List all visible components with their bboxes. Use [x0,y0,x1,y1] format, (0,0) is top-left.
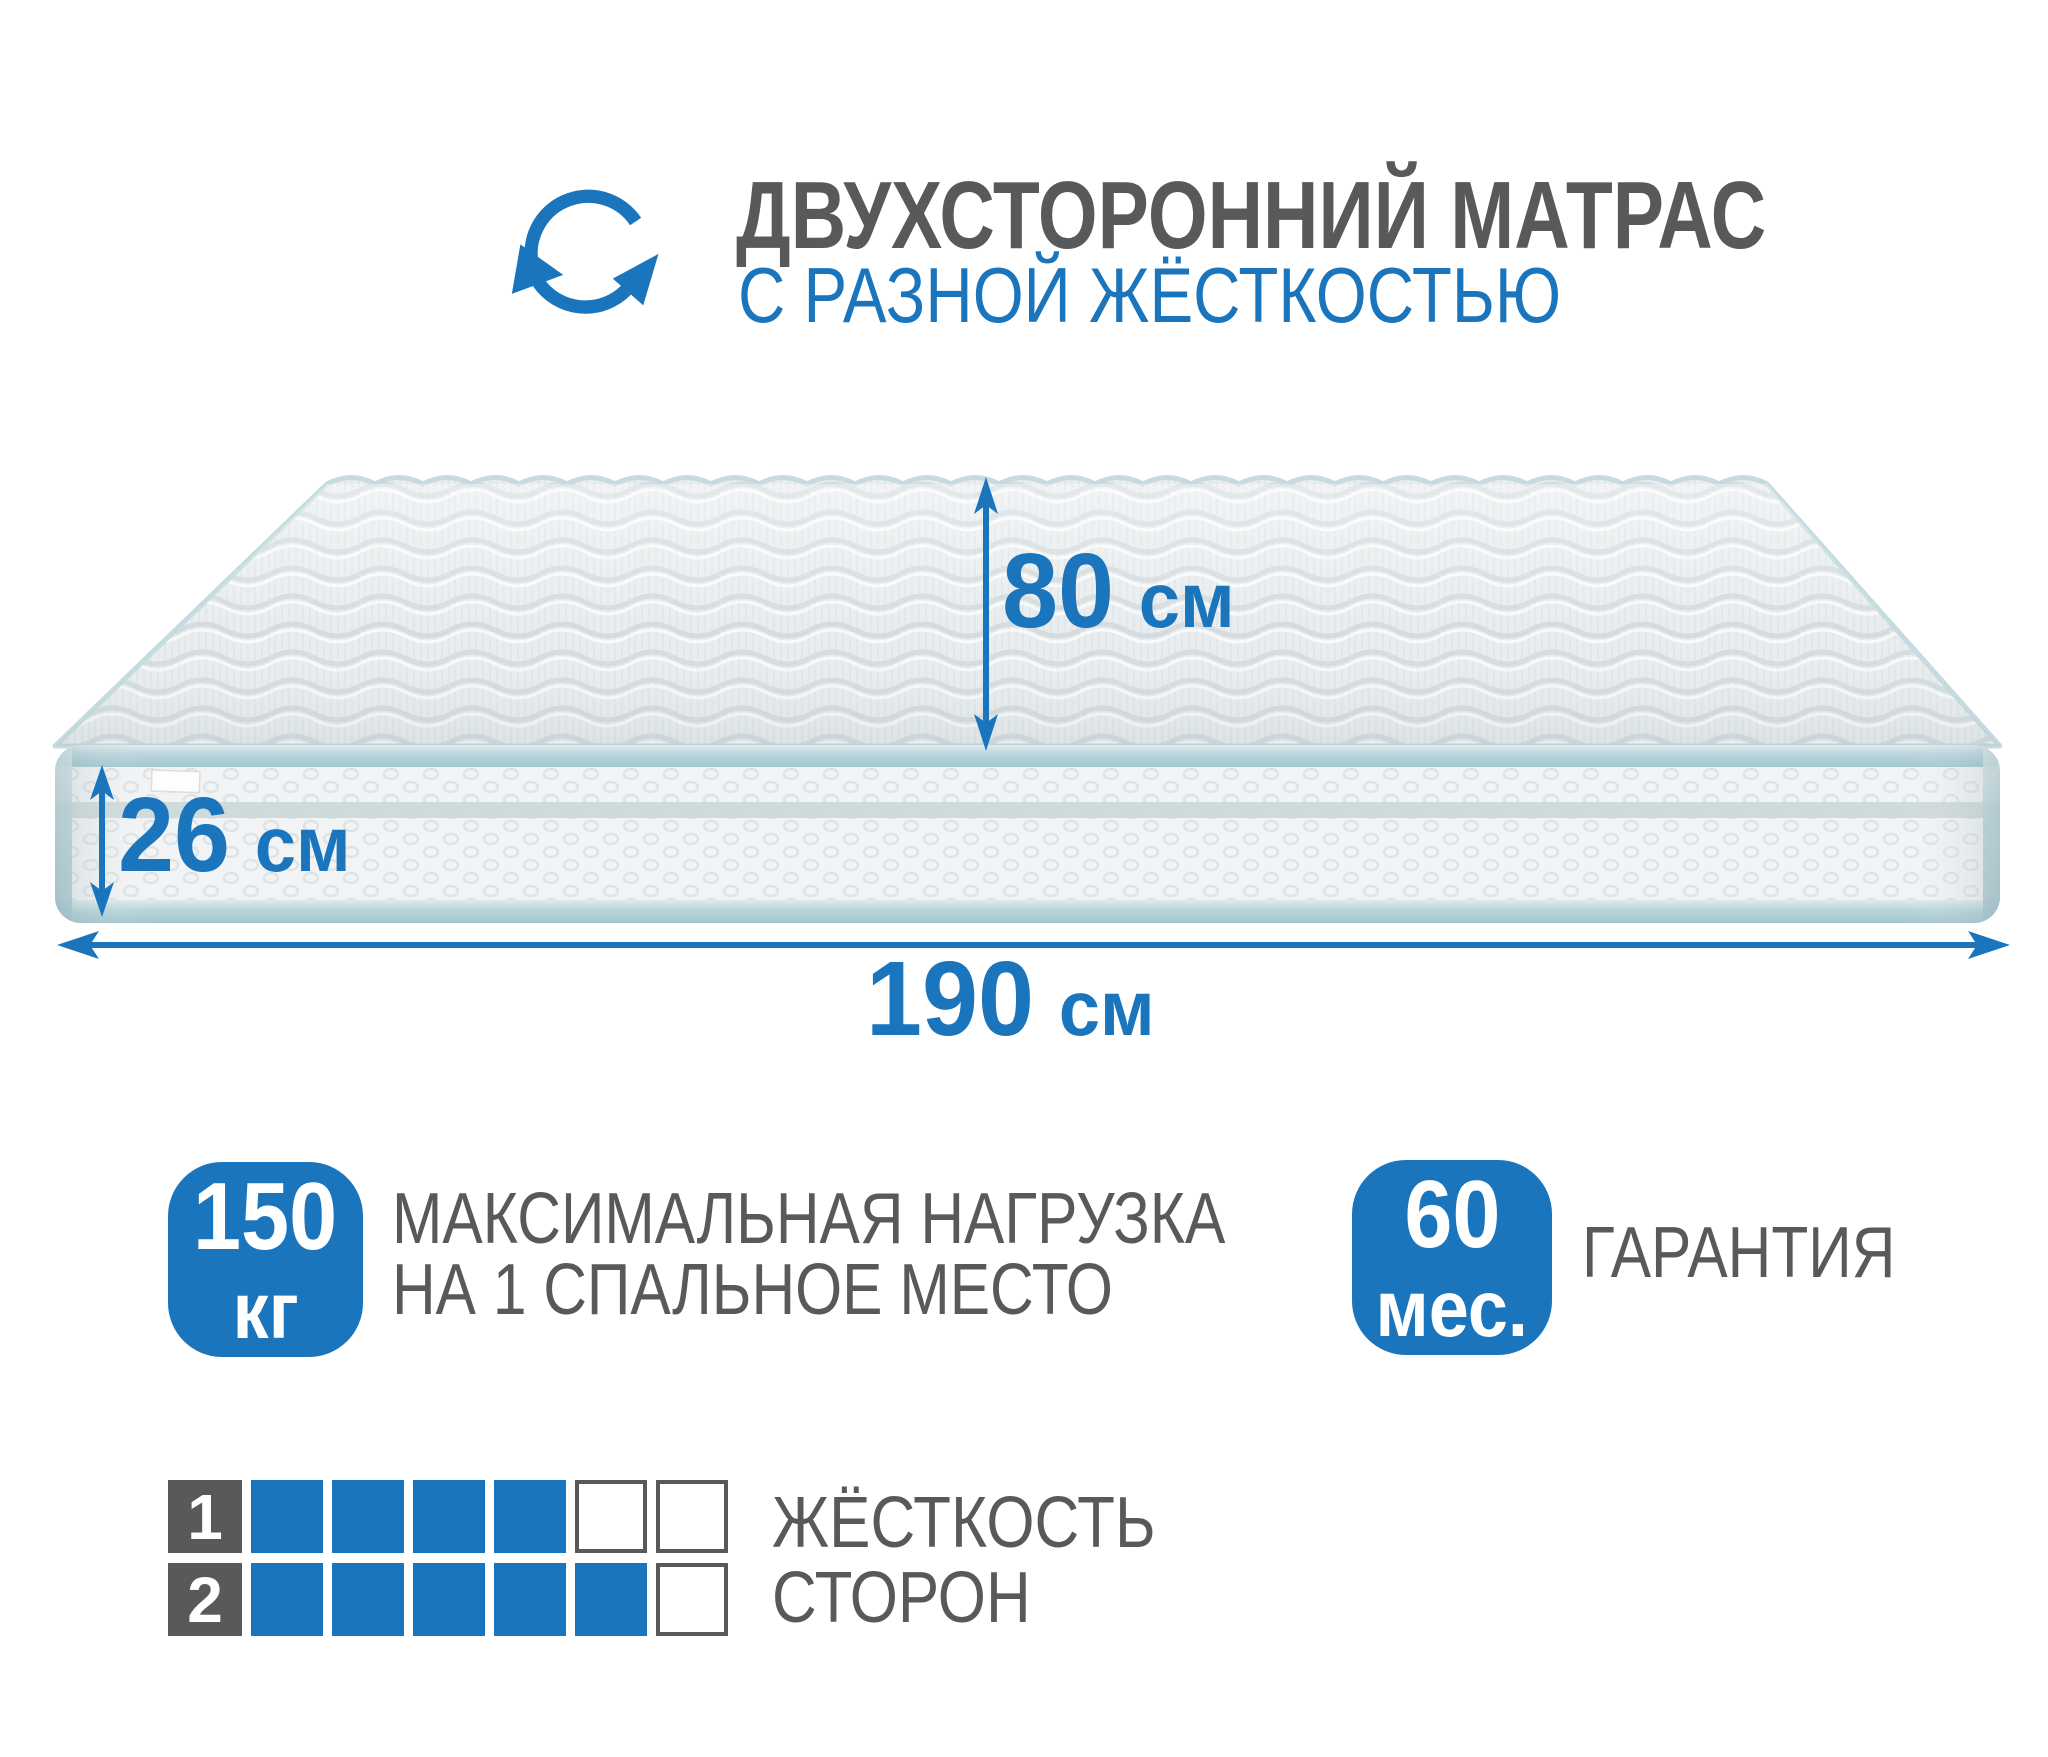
warranty-badge: 60 мес. [1352,1160,1552,1355]
length-unit: см [1059,969,1155,1047]
firmness-cell-filled [413,1563,485,1636]
firmness-cell-filled [251,1563,323,1636]
firmness-cell-filled [332,1563,404,1636]
firmness-cell-filled [413,1480,485,1553]
firmness-row-side1: 1 [168,1480,728,1553]
max-load-unit: кг [232,1271,298,1351]
mattress-bottom-tape [55,900,2000,923]
firmness-row-label: 1 [168,1480,242,1553]
firmness-cell-filled [332,1480,404,1553]
length-value: 190 [866,946,1034,1052]
rotate-arrows-icon [502,172,674,332]
firmness-cell-empty [656,1480,728,1553]
page-title: ДВУХСТОРОННИЙ МАТРАС [736,168,1766,264]
width-unit: см [1139,561,1235,639]
height-dimension-arrow [90,765,114,917]
firmness-caption-line2: СТОРОН [772,1561,1156,1636]
max-load-caption-line1: МАКСИМАЛЬНАЯ НАГРУЗКА [392,1184,1225,1255]
firmness-cell-filled [575,1563,647,1636]
firmness-cell-empty [575,1480,647,1553]
firmness-row-side2: 2 [168,1563,728,1636]
max-load-badge: 150 кг [168,1162,363,1357]
firmness-cells-side1 [251,1480,728,1553]
page-subtitle: С РАЗНОЙ ЖЁСТКОСТЬЮ [738,256,1561,334]
max-load-caption: МАКСИМАЛЬНАЯ НАГРУЗКА НА 1 СПАЛЬНОЕ МЕСТ… [392,1184,1225,1326]
firmness-row-label: 2 [168,1563,242,1636]
firmness-scale-caption: ЖЁСТКОСТЬ СТОРОН [772,1486,1156,1636]
width-dimension-arrow [974,477,998,751]
firmness-cell-filled [494,1563,566,1636]
max-load-caption-line2: НА 1 СПАЛЬНОЕ МЕСТО [392,1255,1225,1326]
warranty-unit: мес. [1376,1269,1528,1349]
width-dimension-label: 80 см [1002,538,1235,644]
height-unit: см [255,805,351,883]
firmness-cell-empty [656,1563,728,1636]
warranty-value: 60 [1404,1167,1500,1263]
firmness-caption-line1: ЖЁСТКОСТЬ [772,1486,1156,1561]
mattress-top-tape [55,745,2000,767]
firmness-scale: 1 2 [168,1480,728,1646]
max-load-value: 150 [193,1169,337,1265]
height-value: 26 [118,782,230,888]
height-dimension-label: 26 см [118,782,351,888]
firmness-cells-side2 [251,1563,728,1636]
firmness-cell-filled [494,1480,566,1553]
length-dimension-label: 190 см [866,946,1155,1052]
warranty-caption: ГАРАНТИЯ [1582,1218,1895,1289]
width-value: 80 [1002,538,1114,644]
mattress-infographic: ДВУХСТОРОННИЙ МАТРАС С РАЗНОЙ ЖЁСТКОСТЬЮ… [0,0,2048,1757]
firmness-cell-filled [251,1480,323,1553]
